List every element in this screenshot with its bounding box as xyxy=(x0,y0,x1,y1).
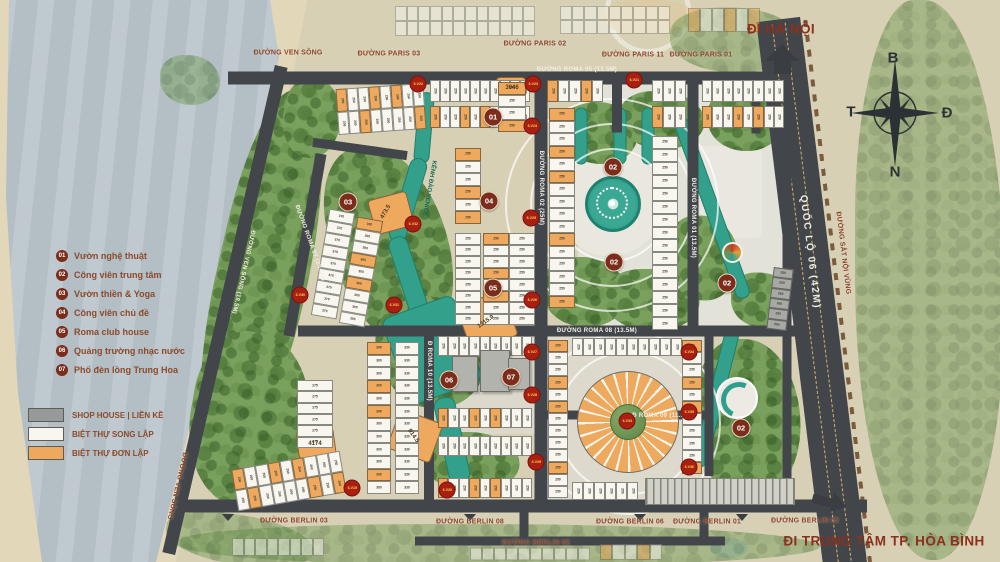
lot-cell: 250 xyxy=(605,482,616,500)
lot-cell: 250 xyxy=(652,227,678,240)
lot-block: 250250250250250250 xyxy=(572,482,638,500)
lot-area-value: 300 xyxy=(376,347,382,350)
lot-area-value: 250 xyxy=(778,292,784,296)
lot-cell: 250 xyxy=(501,478,511,498)
lot-area-value: 250 xyxy=(462,343,465,349)
lot-cell: 250 xyxy=(450,80,460,102)
lot-area-value: 300 xyxy=(376,448,382,451)
lot-cell xyxy=(597,20,609,34)
lot-cell: 250 xyxy=(511,436,521,456)
lot-badge: 6.V24 xyxy=(524,118,541,135)
central-fountain xyxy=(585,176,641,232)
lot-cell xyxy=(542,547,554,560)
lot-cell xyxy=(621,20,633,34)
lot-cell: 250 xyxy=(490,478,500,498)
poi-marker: 02 xyxy=(604,158,623,177)
legend-poi-item: 05Roma club house xyxy=(56,326,185,338)
lot-cell: 250 xyxy=(652,136,678,149)
lot-area-value: 250 xyxy=(525,415,528,421)
lot-area-value: 250 xyxy=(559,288,565,291)
large-lot-area-label: 4174 xyxy=(308,441,321,447)
lot-cell: 275 xyxy=(297,414,333,425)
lot-area-value: 250 xyxy=(562,88,565,94)
lot-area-value: 250 xyxy=(620,488,623,494)
lot-area-value: 250 xyxy=(689,369,695,372)
lot-area-value: 370 xyxy=(322,309,328,313)
lot-cell: 250 xyxy=(511,408,521,428)
lot-block: 250250250250250250250250 xyxy=(702,106,784,128)
lot-block: 250250250250250250250250250250 xyxy=(572,338,682,356)
lot-cell xyxy=(560,20,572,34)
lot-area-value: 250 xyxy=(473,415,476,421)
lot-cell: 250 xyxy=(455,291,481,303)
lot-area-value: 250 xyxy=(395,94,399,100)
lot-area-value: 250 xyxy=(265,493,269,499)
lot-cell: 250 xyxy=(652,291,678,304)
lot-area-value: 250 xyxy=(559,150,565,153)
lot-cell: 250 xyxy=(327,451,343,474)
road-label: ĐƯỜNG BERLIN 05 xyxy=(771,518,839,525)
lot-cell: 250 xyxy=(483,233,509,245)
poi-marker: 05 xyxy=(484,279,503,298)
lot-area-value: 250 xyxy=(519,306,525,309)
lot-area-value: 250 xyxy=(609,488,612,494)
lot-area-value: 250 xyxy=(396,116,400,122)
lot-cell: 250 xyxy=(548,352,568,364)
lot-area-value: 250 xyxy=(325,482,329,488)
legend-poi-item: 07Phố đèn lồng Trung Hoa xyxy=(56,364,185,376)
lot-cell: 250 xyxy=(549,183,575,196)
lot-cell: 250 xyxy=(448,408,458,428)
lot-cell: 250 xyxy=(558,80,569,102)
lot-area-value: 330 xyxy=(404,385,410,388)
lot-area-value: 250 xyxy=(407,116,411,122)
lot-cell: 250 xyxy=(594,338,605,356)
lot-cell xyxy=(612,544,624,560)
lot-area-value: 250 xyxy=(519,237,525,240)
hanoi-arrow-icon xyxy=(765,44,799,61)
lot-area-value: 250 xyxy=(587,488,590,494)
lot-cell: 300 xyxy=(367,481,391,494)
lot-cell: 250 xyxy=(480,436,490,456)
compass-north: B xyxy=(888,50,899,67)
lot-area-value: 250 xyxy=(494,415,497,421)
lot-badge: 6.V22 xyxy=(410,76,427,93)
lot-cell: 250 xyxy=(733,106,743,128)
destination-hanoi: ĐI HÀ NỘI xyxy=(747,22,815,37)
lot-badge-label: 6.V28 xyxy=(527,393,536,397)
lot-area-value: 250 xyxy=(249,474,253,480)
lot-area-value: 250 xyxy=(667,114,670,120)
lot-cell: 250 xyxy=(649,338,660,356)
lot-area-value: 250 xyxy=(736,114,739,120)
lot-area-value: 250 xyxy=(465,237,471,240)
lot-block: 250250250250250250250250 xyxy=(455,233,481,325)
lot-area-value: 250 xyxy=(519,283,525,286)
lot-badge: 6.V27 xyxy=(524,344,541,361)
lot-cell: 300 xyxy=(367,456,391,469)
lot-cell xyxy=(301,538,313,556)
lot-area-value: 250 xyxy=(453,88,456,94)
lot-area-value: 250 xyxy=(465,306,471,309)
legend-type-item: BIỆT THỰ ĐƠN LẬP xyxy=(28,446,163,460)
lot-badge: 6.V29 xyxy=(528,454,545,471)
legend-poi-label: Quảng trường nhạc nước xyxy=(74,346,185,356)
lot-cell: 250 xyxy=(469,336,479,356)
lot-area-value: 250 xyxy=(779,282,785,286)
green-area xyxy=(160,55,220,105)
lot-area-value: 250 xyxy=(453,114,456,120)
lot-area-value: 250 xyxy=(515,443,518,449)
lot-area-value: 250 xyxy=(494,485,497,491)
lot-area-value: 250 xyxy=(494,343,497,349)
lot-cell: 250 xyxy=(743,80,753,102)
lot-badge-label: 6.V31 xyxy=(389,303,398,307)
lot-cell: 250 xyxy=(522,408,532,428)
lot-block xyxy=(232,538,324,556)
lot-cell: 250 xyxy=(438,436,448,456)
lot-cell: 250 xyxy=(583,482,594,500)
parking-lot xyxy=(645,478,795,505)
lot-area-value: 250 xyxy=(442,443,445,449)
lot-badge: 6.V36 xyxy=(681,459,698,476)
lot-area-value: 250 xyxy=(462,415,465,421)
junction-arrow-icon xyxy=(222,514,234,521)
lot-cell: 250 xyxy=(455,173,481,186)
lot-area-value: 250 xyxy=(675,344,678,350)
lot-cell: 250 xyxy=(605,338,616,356)
lot-area-value: 250 xyxy=(631,488,634,494)
lot-area-value: 250 xyxy=(285,468,289,474)
lot-area-value: 370 xyxy=(326,286,332,290)
lot-cell: 250 xyxy=(455,256,481,268)
lot-cell: 250 xyxy=(459,408,469,428)
lot-cell: 250 xyxy=(753,80,763,102)
lot-area-value: 250 xyxy=(596,88,599,94)
lot-cell: 250 xyxy=(455,268,481,280)
lot-area-value: 275 xyxy=(312,395,318,398)
lot-area-value: 300 xyxy=(366,223,372,227)
lot-area-value: 250 xyxy=(559,275,565,278)
lot-area-value: 370 xyxy=(336,226,342,230)
lot-area-value: 250 xyxy=(313,484,317,490)
road-label: ĐƯỜNG BERLIN 02 xyxy=(502,540,570,547)
lot-area-value: 330 xyxy=(404,347,410,350)
lot-area-value: 300 xyxy=(376,461,382,464)
lot-area-value: 330 xyxy=(404,359,410,362)
lot-area-value: 300 xyxy=(350,317,356,321)
poi-marker: 02 xyxy=(718,274,737,293)
lot-cell: 250 xyxy=(592,80,603,102)
lot-area-value: 250 xyxy=(473,114,476,120)
lot-cell: 250 xyxy=(583,338,594,356)
lot-cell: 250 xyxy=(682,364,702,376)
housing-type-legend: SHOP HOUSE | LIỀN KỀBIỆT THỰ SONG LẬPBIỆ… xyxy=(28,408,163,460)
lot-cell: 250 xyxy=(682,437,702,449)
lot-cell: 300 xyxy=(367,342,391,355)
lot-area-value: 250 xyxy=(555,369,561,372)
lot-area-value: 250 xyxy=(473,343,476,349)
lot-badge-label: 6.V36 xyxy=(684,465,693,469)
lot-area-value: 370 xyxy=(328,274,334,278)
lot-area-value: 250 xyxy=(576,488,579,494)
lot-cell: 250 xyxy=(723,80,733,102)
lot-cell xyxy=(395,6,407,21)
lot-area-value: 250 xyxy=(433,114,436,120)
lot-area-value: 250 xyxy=(757,88,760,94)
lot-cell: 250 xyxy=(660,338,671,356)
lot-cell: 250 xyxy=(469,408,479,428)
lot-cell xyxy=(633,20,645,34)
lot-cell: 250 xyxy=(549,158,575,171)
lot-area-value: 250 xyxy=(620,344,623,350)
lot-cell: 250 xyxy=(501,436,511,456)
lot-cell: 250 xyxy=(652,162,678,175)
lot-area-value: 250 xyxy=(746,114,749,120)
lot-block: 2502502502502502502502502502502502502502… xyxy=(549,108,575,308)
lot-cell: 250 xyxy=(712,80,722,102)
lot-area-value: 370 xyxy=(330,262,336,266)
lot-area-value: 250 xyxy=(452,415,455,421)
lot-badge: 6.V28 xyxy=(524,387,541,404)
fountain-core xyxy=(609,200,615,206)
lot-area-value: 330 xyxy=(404,423,410,426)
lot-cell xyxy=(597,6,609,20)
lot-cell: 250 xyxy=(594,482,605,500)
lot-cell: 250 xyxy=(581,80,592,102)
lot-area-value: 250 xyxy=(662,257,668,260)
destination-hoabinh: ĐI TRUNG TÂM TP. HÒA BÌNH xyxy=(783,534,984,549)
lot-area-value: 250 xyxy=(493,272,499,275)
lot-area-value: 250 xyxy=(662,205,668,208)
lot-cell xyxy=(530,547,542,560)
lot-block: 250250250 xyxy=(652,80,686,102)
lot-cell xyxy=(658,20,670,34)
lot-cell: 300 xyxy=(367,380,391,393)
legend-poi-label: Công viên trung tâm xyxy=(74,270,162,280)
lot-cell: 250 xyxy=(509,268,535,280)
lot-cell: 250 xyxy=(572,482,583,500)
lot-cell: 250 xyxy=(455,211,481,224)
lot-cell xyxy=(572,6,584,20)
lot-cell xyxy=(418,21,430,36)
legend-type-item: BIỆT THỰ SONG LẬP xyxy=(28,427,163,441)
lot-area-value: 250 xyxy=(777,114,780,120)
legend-poi-label: Vườn thiền & Yoga xyxy=(74,289,155,299)
lot-area-value: 250 xyxy=(555,429,561,432)
lot-cell: 250 xyxy=(460,106,470,128)
poi-marker: 02 xyxy=(605,253,624,272)
lot-cell: 250 xyxy=(549,208,575,221)
lot-cell: 250 xyxy=(702,106,712,128)
lot-area-value: 250 xyxy=(261,472,265,478)
lot-area-value: 250 xyxy=(465,153,471,156)
lot-cell: 250 xyxy=(455,279,481,291)
lot-block: 250250250250250250250250250 xyxy=(438,436,532,456)
lot-cell xyxy=(470,547,482,560)
lot-area-value: 250 xyxy=(340,97,344,103)
club-house-circle xyxy=(716,377,758,419)
lot-area-value: 250 xyxy=(679,88,682,94)
lot-area-value: 250 xyxy=(662,167,668,170)
lot-cell: 250 xyxy=(483,302,509,314)
lot-cell: 250 xyxy=(549,283,575,296)
lot-cell xyxy=(482,547,494,560)
lot-cell: 250 xyxy=(549,171,575,184)
lot-area-value: 330 xyxy=(404,473,410,476)
lot-area-value: 250 xyxy=(679,114,682,120)
lot-cell: 250 xyxy=(490,436,500,456)
legend-poi-number: 06 xyxy=(56,345,68,357)
legend-poi-number: 01 xyxy=(56,250,68,262)
lot-cell: 250 xyxy=(509,245,535,257)
lot-area-value: 250 xyxy=(757,114,760,120)
lot-cell: 250 xyxy=(652,317,678,330)
lot-area-value: 250 xyxy=(493,260,499,263)
lot-area-value: 250 xyxy=(515,415,518,421)
lot-area-value: 250 xyxy=(483,88,486,94)
lot-area-value: 300 xyxy=(356,282,362,286)
lot-cell: 250 xyxy=(616,338,627,356)
lot-badge-label: 6.V25 xyxy=(526,216,535,220)
lot-cell xyxy=(506,547,518,560)
road-label: ĐƯỜNG BERLIN 03 xyxy=(260,518,328,525)
lot-area-value: 250 xyxy=(519,249,525,252)
lot-area-value: 250 xyxy=(473,88,476,94)
lot-area-value: 250 xyxy=(559,175,565,178)
lot-cell: 250 xyxy=(652,188,678,201)
lot-cell: 330 xyxy=(395,342,419,355)
lot-area-value: 250 xyxy=(555,490,561,493)
lot-cell: 250 xyxy=(438,336,448,356)
lot-area-value: 300 xyxy=(352,305,358,309)
lot-badge-label: 6.V30 xyxy=(295,293,304,297)
lot-area-value: 300 xyxy=(376,435,382,438)
lot-cell: 250 xyxy=(652,175,678,188)
lot-area-value: 250 xyxy=(463,114,466,120)
lot-area-value: 250 xyxy=(273,470,277,476)
lot-area-value: 250 xyxy=(555,357,561,360)
lot-cell: 250 xyxy=(483,245,509,257)
lot-area-value: 250 xyxy=(374,118,378,124)
lot-cell: 330 xyxy=(395,456,419,469)
lot-area-value: 300 xyxy=(376,473,382,476)
lot-cell: 250 xyxy=(572,338,583,356)
lot-area-value: 330 xyxy=(404,397,410,400)
lot-cell: 250 xyxy=(448,336,458,356)
lot-area-value: 300 xyxy=(360,258,366,262)
lot-cell: 275 xyxy=(297,403,333,414)
flower-feature xyxy=(722,242,743,263)
lot-area-value: 250 xyxy=(525,485,528,491)
road-label: ĐƯỜNG ROMA 01 (13.5M) xyxy=(690,178,696,258)
lot-area-value: 370 xyxy=(338,215,344,219)
lot-area-value: 250 xyxy=(519,318,525,321)
lot-block: 330330330330330330330330330330330330 xyxy=(395,342,419,494)
road-label: ĐƯỜNG PARIS 11 xyxy=(602,52,664,59)
lot-area-value: 250 xyxy=(559,125,565,128)
lot-cell: 250 xyxy=(548,389,568,401)
lot-block: 250250250250250250 xyxy=(455,148,481,224)
lot-area-value: 250 xyxy=(653,344,656,350)
lot-cell xyxy=(584,20,596,34)
lot-cell: 250 xyxy=(548,413,568,425)
road-label: Đ ROMA 10 (13.5M) xyxy=(426,341,432,401)
lot-area-value: 250 xyxy=(321,461,325,467)
lot-cell: 250 xyxy=(440,106,450,128)
lot-area-value: 370 xyxy=(332,250,338,254)
lot-area-value: 250 xyxy=(463,88,466,94)
lot-area-value: 330 xyxy=(404,410,410,413)
lot-badge: 6.V19 xyxy=(344,480,361,497)
road-label: ĐƯỜNG BERLIN 01 xyxy=(673,519,741,526)
road-label: ĐƯỜNG PARIS 02 xyxy=(504,41,567,48)
lot-cell xyxy=(494,547,506,560)
lot-area-value: 250 xyxy=(662,296,668,299)
lot-cell: 250 xyxy=(682,425,702,437)
lot-cell xyxy=(646,20,658,34)
lot-cell: 250 xyxy=(509,256,535,268)
lot-area-value: 250 xyxy=(656,114,659,120)
legend-type-swatch xyxy=(28,446,64,460)
lot-area-value: 250 xyxy=(342,120,346,126)
lot-cell xyxy=(232,538,244,556)
lot-area-value: 250 xyxy=(452,443,455,449)
lot-cell: 250 xyxy=(549,221,575,234)
lot-area-value: 250 xyxy=(656,88,659,94)
lot-badge-label: 6.V34 xyxy=(684,350,693,354)
lot-cell: 250 xyxy=(483,268,509,280)
lot-area-value: 250 xyxy=(509,99,515,102)
lot-area-value: 250 xyxy=(767,88,770,94)
road xyxy=(298,326,796,337)
lot-area-value: 250 xyxy=(667,88,670,94)
lot-area-value: 250 xyxy=(576,344,579,350)
lot-area-value: 250 xyxy=(555,466,561,469)
lot-area-value: 250 xyxy=(465,178,471,181)
lot-area-value: 250 xyxy=(337,480,341,486)
legend-poi-number: 05 xyxy=(56,326,68,338)
lot-area-value: 250 xyxy=(519,272,525,275)
lot-cell: 250 xyxy=(547,80,558,102)
lot-cell xyxy=(625,544,637,560)
lot-cell: 250 xyxy=(652,239,678,252)
lot-badge: 6.V31 xyxy=(386,297,403,314)
lot-area-value: 250 xyxy=(277,490,281,496)
lot-area-value: 250 xyxy=(689,381,695,384)
lot-area-value: 250 xyxy=(642,344,645,350)
lot-area-value: 250 xyxy=(585,88,588,94)
lot-area-value: 250 xyxy=(443,88,446,94)
lot-area-value: 250 xyxy=(417,92,421,98)
lot-cell: 250 xyxy=(652,149,678,162)
lot-block xyxy=(470,547,590,560)
road-label: ĐƯỜNG BERLIN 08 xyxy=(436,519,504,526)
legend-poi-item: 06Quảng trường nhạc nước xyxy=(56,345,185,357)
lot-cell xyxy=(407,6,419,21)
lot-badge: 6.V32 xyxy=(405,216,422,233)
lot-cell: 330 xyxy=(395,469,419,482)
lot-cell xyxy=(650,544,662,560)
lot-area-value: 300 xyxy=(376,423,382,426)
lot-badge: 6.V33 xyxy=(619,413,636,430)
lot-cell: 300 xyxy=(367,405,391,418)
lot-cell: 250 xyxy=(743,106,753,128)
legend-poi-item: 03Vườn thiền & Yoga xyxy=(56,288,185,300)
lot-area-value: 250 xyxy=(716,88,719,94)
legend-poi-number: 04 xyxy=(56,307,68,319)
lot-area-value: 250 xyxy=(746,88,749,94)
